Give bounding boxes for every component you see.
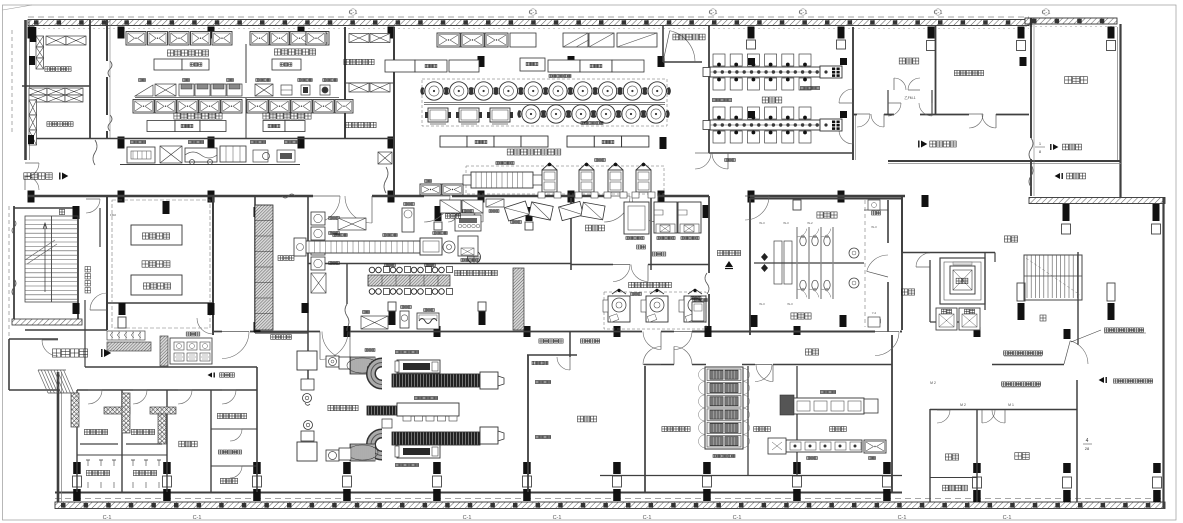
svg-text:C-1: C-1 xyxy=(103,515,112,521)
svg-text:C-1: C-1 xyxy=(553,515,562,521)
svg-text:W-3: W-3 xyxy=(759,221,765,225)
svg-text:C-1: C-1 xyxy=(193,515,202,521)
svg-text:C-1: C-1 xyxy=(643,515,652,521)
svg-text:4: 4 xyxy=(1086,438,1089,444)
svg-text:FM2: FM2 xyxy=(110,213,116,217)
svg-text:M 2: M 2 xyxy=(960,403,966,407)
svg-text:W-3: W-3 xyxy=(787,302,793,306)
svg-text:C-1: C-1 xyxy=(733,515,742,521)
svg-text:M 1: M 1 xyxy=(1008,403,1014,407)
svg-text:28: 28 xyxy=(1085,446,1090,451)
svg-text:W-3: W-3 xyxy=(783,221,789,225)
svg-text:C-1: C-1 xyxy=(1003,515,1012,521)
svg-text:M 2: M 2 xyxy=(930,381,936,385)
svg-text:W-2: W-2 xyxy=(807,221,813,225)
svg-text:W-3: W-3 xyxy=(871,225,877,229)
svg-text:Y-2: Y-2 xyxy=(872,311,877,315)
svg-text:C-1: C-1 xyxy=(463,515,472,521)
svg-text:W-3: W-3 xyxy=(759,302,765,306)
svg-text:乙FM-1: 乙FM-1 xyxy=(904,95,915,100)
svg-text:C-1: C-1 xyxy=(898,515,907,521)
